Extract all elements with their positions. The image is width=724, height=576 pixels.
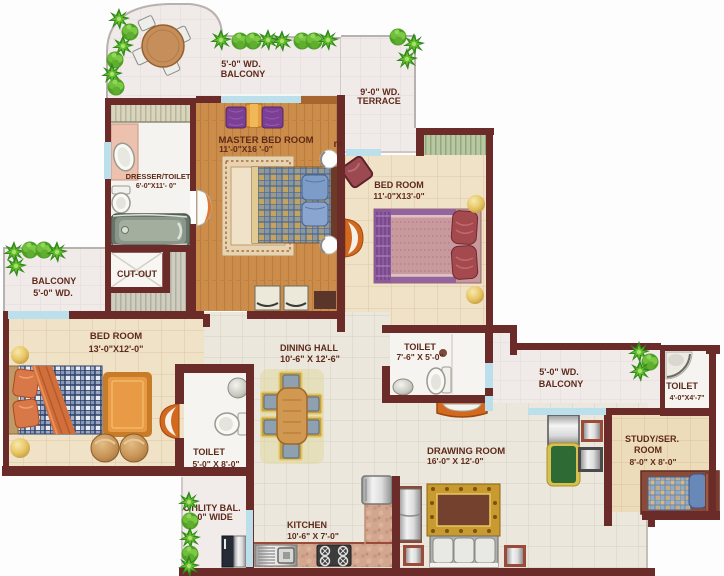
svg-text:BED ROOM: BED ROOM	[374, 180, 424, 190]
svg-text:5'-0" X 8'-0": 5'-0" X 8'-0"	[192, 459, 239, 469]
svg-text:10'-6" X 12'-6": 10'-6" X 12'-6"	[280, 354, 340, 364]
svg-text:BALCONY: BALCONY	[539, 379, 584, 389]
svg-text:ROOM: ROOM	[634, 445, 662, 455]
svg-text:TOILET: TOILET	[404, 342, 436, 352]
svg-text:BED ROOM: BED ROOM	[90, 331, 142, 342]
svg-text:CUT-OUT: CUT-OUT	[117, 269, 157, 279]
svg-text:KITCHEN: KITCHEN	[287, 520, 327, 530]
svg-text:10'-6" X 7'-0": 10'-6" X 7'-0"	[287, 531, 339, 541]
svg-text:DRESSER/TOILET: DRESSER/TOILET	[126, 172, 191, 181]
svg-text:BALCONY: BALCONY	[221, 69, 266, 79]
svg-text:TOILET: TOILET	[666, 381, 698, 391]
svg-text:STUDY/SER.: STUDY/SER.	[625, 434, 679, 444]
svg-text:6'-0"X11'- 0": 6'-0"X11'- 0"	[136, 183, 176, 190]
svg-text:m: m	[334, 139, 343, 150]
svg-text:16'-0" X 12'-0": 16'-0" X 12'-0"	[427, 456, 484, 466]
svg-text:BALCONY: BALCONY	[32, 276, 77, 286]
svg-text:5'-0" WD.: 5'-0" WD.	[221, 59, 260, 69]
svg-text:13'-0"X12'-0": 13'-0"X12'-0"	[89, 344, 144, 354]
svg-text:DINING HALL: DINING HALL	[280, 343, 338, 353]
svg-text:5'-0" WD.: 5'-0" WD.	[539, 367, 578, 377]
svg-text:4'-0"X4'-7": 4'-0"X4'-7"	[670, 395, 705, 402]
svg-text:11'-0"X13'-0": 11'-0"X13'-0"	[373, 191, 424, 201]
svg-text:11'-0"X16 '-0": 11'-0"X16 '-0"	[219, 144, 273, 154]
svg-text:5'-0" WD.: 5'-0" WD.	[33, 288, 72, 298]
svg-text:TOILET: TOILET	[193, 447, 225, 457]
svg-text:7'-6" X 5'-0": 7'-6" X 5'-0"	[396, 352, 443, 362]
svg-text:8'-0" X 8'-0": 8'-0" X 8'-0"	[629, 457, 676, 467]
svg-text:TERRACE: TERRACE	[357, 96, 401, 106]
